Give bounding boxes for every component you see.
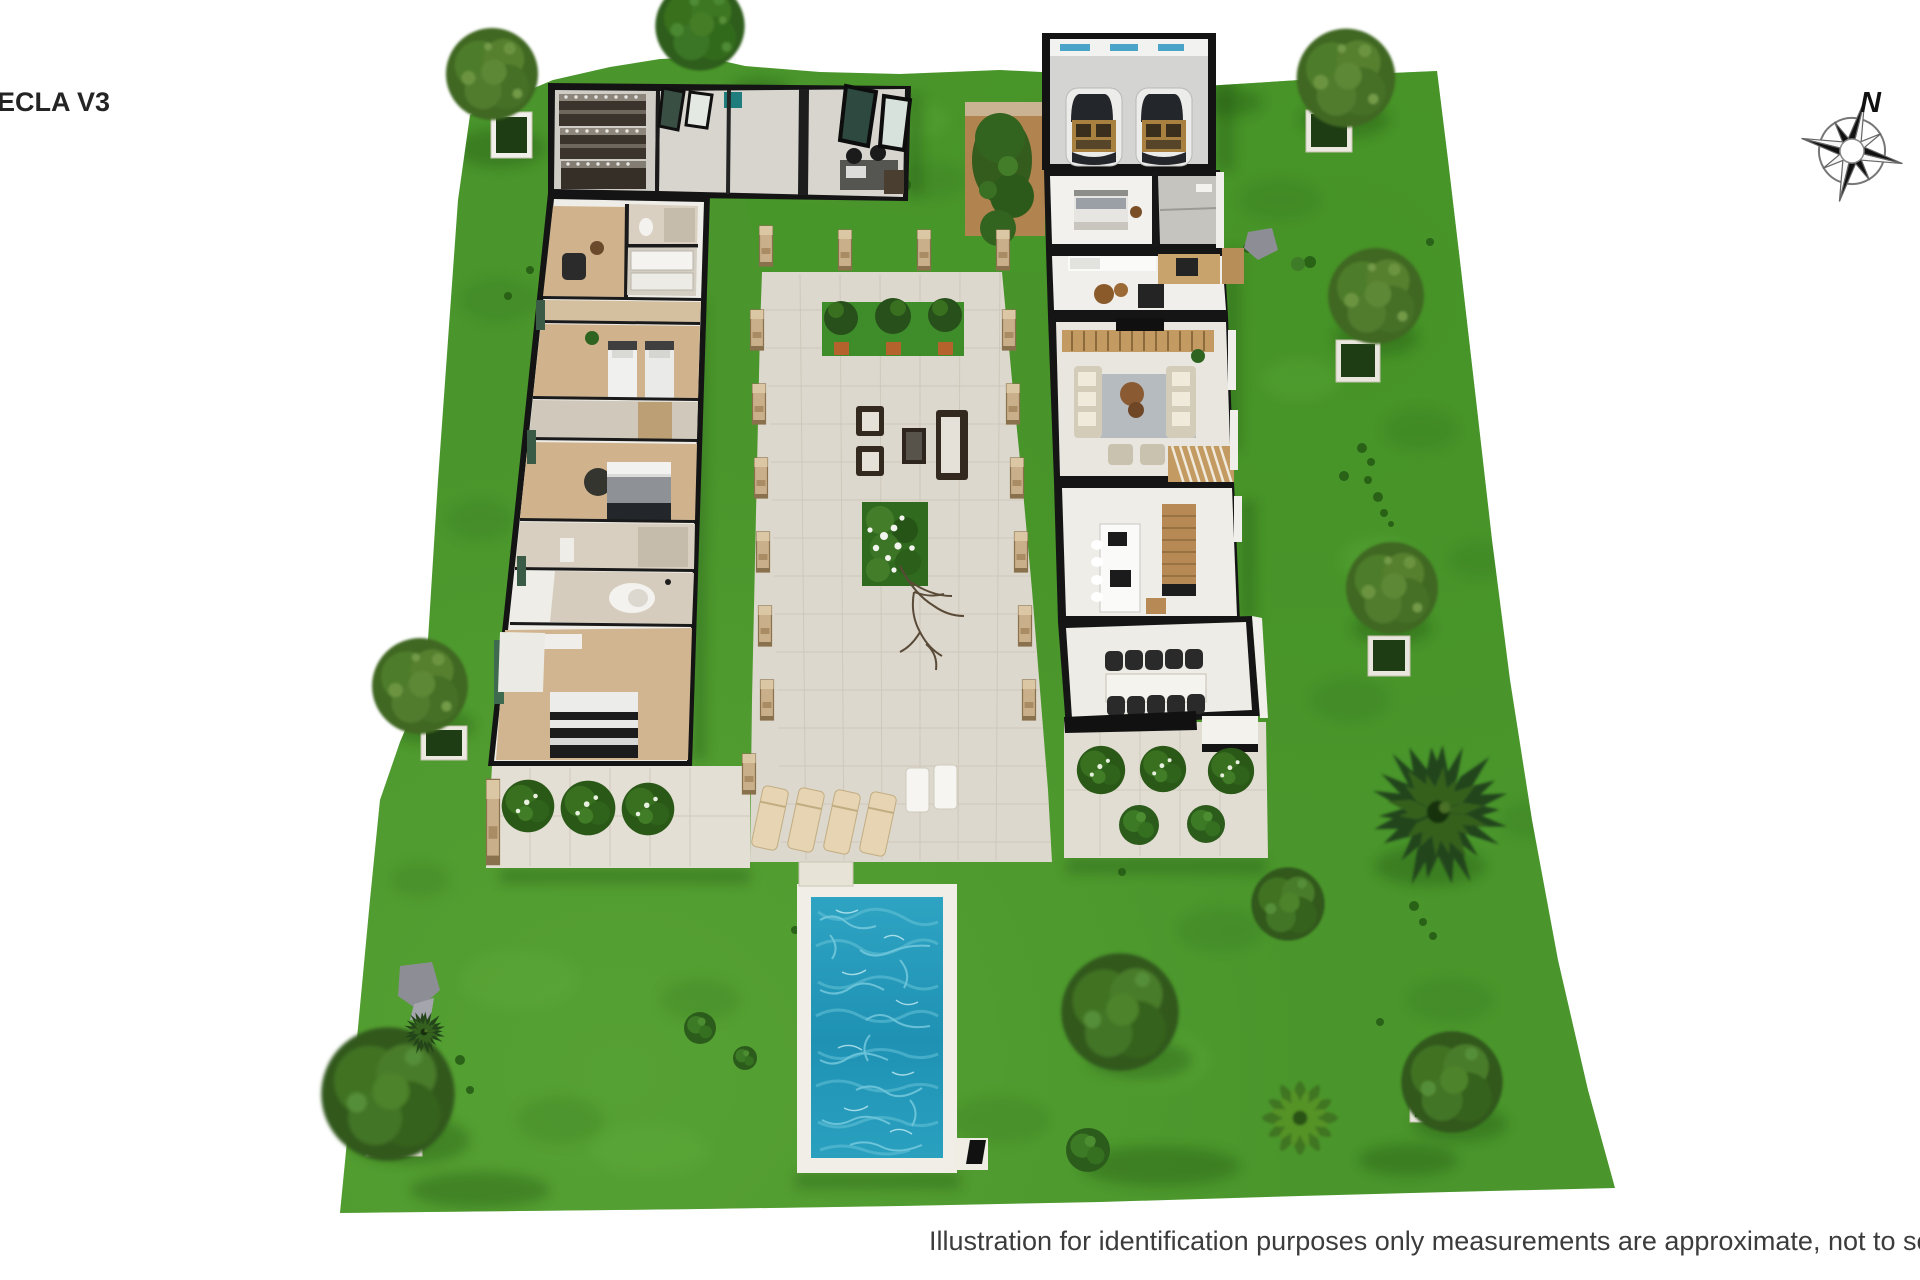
svg-text:ECLA V3: ECLA V3 <box>0 87 110 117</box>
svg-text:Illustration for identificatio: Illustration for identification purposes… <box>929 1226 1920 1256</box>
svg-text:N: N <box>1860 87 1882 119</box>
